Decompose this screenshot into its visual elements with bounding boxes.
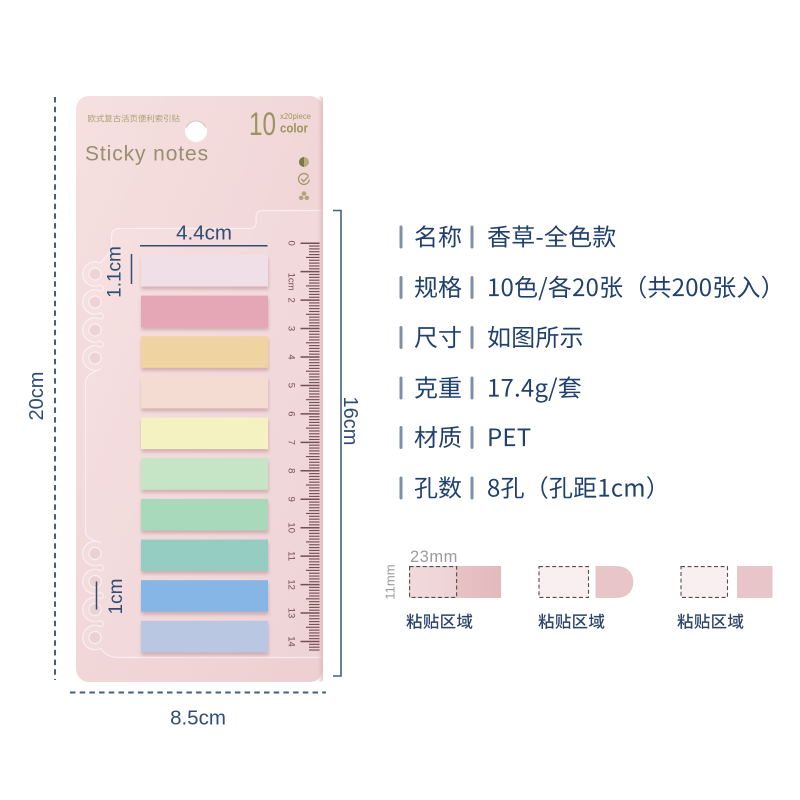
svg-text:6: 6: [286, 411, 297, 416]
svg-text:23mm: 23mm: [410, 548, 458, 566]
svg-text:13: 13: [286, 608, 297, 619]
svg-text:9: 9: [286, 497, 297, 502]
svg-text:11mm: 11mm: [383, 564, 398, 599]
svg-text:10: 10: [286, 522, 297, 533]
svg-text:12: 12: [286, 579, 297, 590]
svg-text:1cm: 1cm: [106, 579, 127, 615]
svg-text:4.4cm: 4.4cm: [176, 222, 232, 245]
svg-text:14: 14: [286, 636, 297, 647]
svg-text:color: color: [280, 121, 308, 136]
svg-text:20cm: 20cm: [26, 372, 48, 421]
svg-text:10: 10: [249, 106, 276, 142]
svg-text:1cm: 1cm: [286, 273, 297, 291]
svg-text:8.5cm: 8.5cm: [170, 707, 226, 730]
svg-text:0: 0: [286, 241, 297, 246]
svg-text:2: 2: [286, 297, 297, 302]
svg-text:3: 3: [286, 326, 297, 331]
svg-text:16cm: 16cm: [339, 397, 361, 446]
svg-text:1.1cm: 1.1cm: [105, 246, 126, 298]
svg-text:8: 8: [286, 468, 297, 473]
svg-text:5: 5: [286, 383, 297, 388]
svg-text:11: 11: [286, 551, 297, 561]
svg-text:Sticky notes: Sticky notes: [85, 143, 209, 166]
svg-text:4: 4: [286, 354, 297, 359]
svg-text:7: 7: [286, 440, 297, 445]
